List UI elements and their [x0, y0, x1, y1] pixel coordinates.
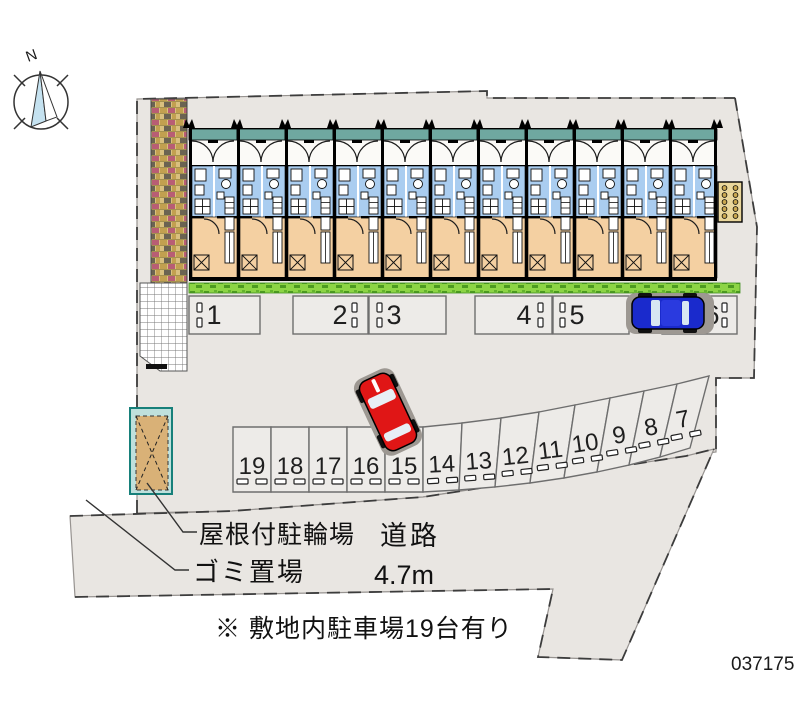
space-number: 2: [332, 300, 347, 330]
unit: [429, 129, 477, 281]
parking-space-1: [189, 296, 260, 334]
space-number: 1: [206, 300, 221, 330]
brick-wall: [151, 99, 187, 283]
space-number: 16: [353, 453, 380, 480]
bicycle-shed: [130, 408, 172, 494]
space-number: 19: [239, 453, 266, 480]
space-number: 13: [464, 447, 493, 476]
unit: [285, 129, 333, 281]
apartment-building: [183, 119, 723, 281]
unit: [525, 129, 573, 281]
grass-strip: [189, 283, 740, 293]
unit: [381, 129, 429, 281]
unit: [477, 129, 525, 281]
space-number: 15: [391, 453, 418, 480]
bicycle-parking-label: 屋根付駐輪場: [199, 521, 355, 549]
unit: [621, 129, 669, 281]
space-number: 11: [536, 436, 564, 466]
compass-north-label: N: [24, 46, 40, 66]
parking-space-2: [293, 296, 368, 334]
unit: [333, 129, 381, 281]
unit: [669, 129, 717, 281]
blue-car: [626, 293, 714, 334]
space-number: 12: [501, 442, 530, 472]
site-plan-page: N: [0, 0, 800, 727]
side-rack: [718, 182, 742, 222]
hatch-foot-mark: [146, 364, 167, 369]
space-number: 10: [570, 428, 600, 458]
site-plan-drawing: N: [0, 0, 800, 727]
space-number: 17: [315, 453, 342, 480]
hatched-area: [140, 283, 187, 371]
garbage-area-label: ゴミ置場: [193, 557, 305, 587]
parking-space-5: [553, 296, 629, 334]
plan-number: 037175: [731, 654, 794, 675]
space-number: 18: [277, 453, 304, 480]
space-number: 5: [569, 300, 584, 330]
unit: [573, 129, 621, 281]
unit: [237, 129, 285, 281]
space-number: 4: [516, 300, 531, 330]
parking-space-3: [369, 296, 446, 334]
parking-space-4: [475, 296, 552, 334]
space-number: 3: [386, 300, 401, 330]
compass: N: [14, 46, 68, 129]
road-width-label: 4.7m: [374, 560, 434, 590]
road-label: 道路: [380, 521, 440, 551]
unit: [189, 129, 237, 281]
space-number: 14: [428, 450, 456, 478]
site-note: ※ 敷地内駐車場19台有り: [215, 615, 513, 643]
